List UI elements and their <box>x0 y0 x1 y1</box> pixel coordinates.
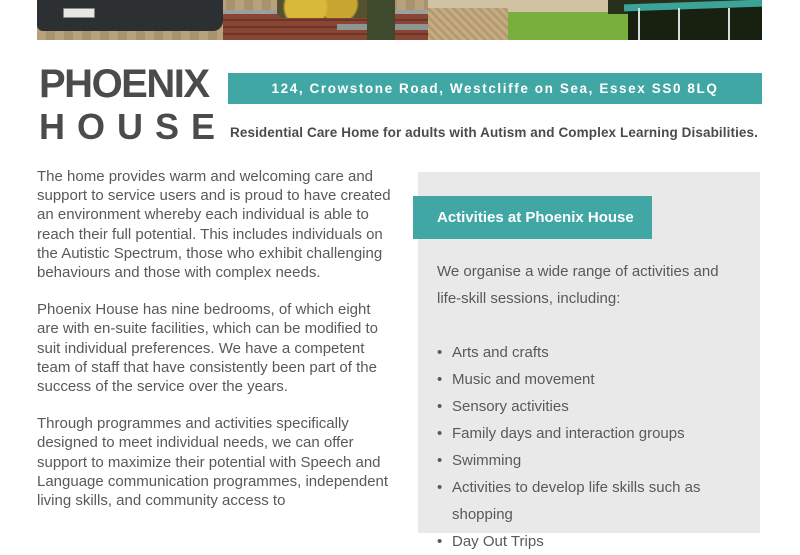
logo: PHOENIX HOUSE <box>39 64 227 145</box>
activities-title-text: Activities at Phoenix House <box>437 209 634 226</box>
paragraph-bedrooms: Phoenix House has nine bedrooms, of whic… <box>37 300 395 396</box>
activities-list: Arts and crafts Music and movement Senso… <box>437 339 737 555</box>
photo-garden <box>428 0 762 40</box>
list-item: Arts and crafts <box>437 339 737 366</box>
list-item: Family days and interaction groups <box>437 420 737 447</box>
yellow-flowers <box>277 0 372 18</box>
list-item: Swimming <box>437 447 737 474</box>
paragraph-programmes: Through programmes and activities specif… <box>37 414 395 510</box>
activities-intro: We organise a wide range of activities a… <box>437 258 732 312</box>
gravel-path <box>428 8 508 40</box>
logo-line-phoenix: PHOENIX <box>39 64 227 104</box>
list-item: Sensory activities <box>437 393 737 420</box>
photo-strip <box>37 0 762 40</box>
trampoline-leg <box>678 8 680 40</box>
photo-driveway <box>37 0 428 40</box>
logo-line-house: HOUSE <box>39 109 227 145</box>
list-item: Activities to develop life skills such a… <box>437 474 737 528</box>
activities-panel-title: Activities at Phoenix House <box>413 196 652 239</box>
description-column: The home provides warm and welcoming car… <box>37 167 395 528</box>
activities-panel: Activities at Phoenix House We organise … <box>418 172 760 533</box>
paragraph-welcome: The home provides warm and welcoming car… <box>37 167 395 282</box>
address-text: 124, Crowstone Road, Westcliffe on Sea, … <box>272 81 719 96</box>
shrub <box>367 0 395 40</box>
trampoline-leg <box>638 8 640 40</box>
list-item: Day Out Trips <box>437 528 737 555</box>
list-item: Music and movement <box>437 366 737 393</box>
trampoline-leg <box>728 8 730 40</box>
license-plate <box>63 8 95 18</box>
address-banner: 124, Crowstone Road, Westcliffe on Sea, … <box>228 73 762 104</box>
tagline: Residential Care Home for adults with Au… <box>230 125 775 140</box>
